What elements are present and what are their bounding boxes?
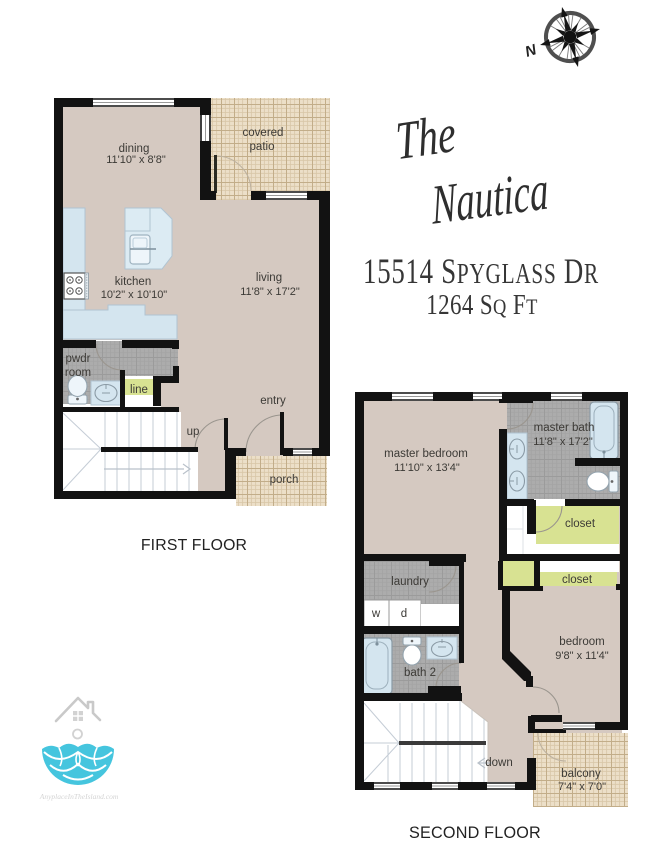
- svg-text:covered: covered: [243, 127, 284, 139]
- svg-text:FIRST FLOOR: FIRST FLOOR: [141, 537, 247, 554]
- svg-text:room: room: [65, 367, 91, 379]
- svg-text:laundry: laundry: [391, 576, 429, 588]
- svg-text:11'8" x 17'2": 11'8" x 17'2": [240, 286, 300, 298]
- svg-text:1264 SQ FT: 1264 SQ FT: [426, 289, 538, 321]
- svg-text:down: down: [485, 757, 513, 769]
- svg-text:up: up: [187, 426, 200, 438]
- svg-text:porch: porch: [270, 474, 299, 486]
- svg-text:11'10" x 8'8": 11'10" x 8'8": [106, 154, 166, 166]
- svg-text:patio: patio: [250, 141, 275, 153]
- svg-text:11'10" x 13'4": 11'10" x 13'4": [394, 462, 460, 474]
- svg-text:9'8" x 11'4": 9'8" x 11'4": [555, 650, 608, 662]
- svg-text:SECOND FLOOR: SECOND FLOOR: [409, 824, 541, 841]
- svg-text:kitchen: kitchen: [115, 276, 151, 288]
- svg-text:w: w: [371, 608, 381, 620]
- svg-text:AnyplaceInTheIsland.com: AnyplaceInTheIsland.com: [39, 792, 119, 801]
- svg-text:bedroom: bedroom: [559, 636, 604, 648]
- svg-text:d: d: [401, 608, 407, 620]
- svg-text:master bath: master bath: [534, 422, 595, 434]
- svg-text:pwdr: pwdr: [66, 353, 91, 365]
- svg-text:entry: entry: [260, 395, 286, 407]
- svg-text:10'2" x 10'10": 10'2" x 10'10": [101, 289, 168, 301]
- svg-text:closet: closet: [562, 574, 593, 586]
- svg-text:balcony: balcony: [561, 768, 601, 780]
- svg-text:11'8" x 17'2": 11'8" x 17'2": [533, 436, 593, 448]
- svg-text:The: The: [394, 104, 458, 171]
- svg-text:line: line: [130, 384, 148, 396]
- svg-text:bath 2: bath 2: [404, 667, 436, 679]
- svg-text:7'4" x 7'0": 7'4" x 7'0": [558, 781, 606, 793]
- svg-text:closet: closet: [565, 518, 596, 530]
- svg-text:living: living: [256, 272, 282, 284]
- svg-text:master bedroom: master bedroom: [384, 448, 468, 460]
